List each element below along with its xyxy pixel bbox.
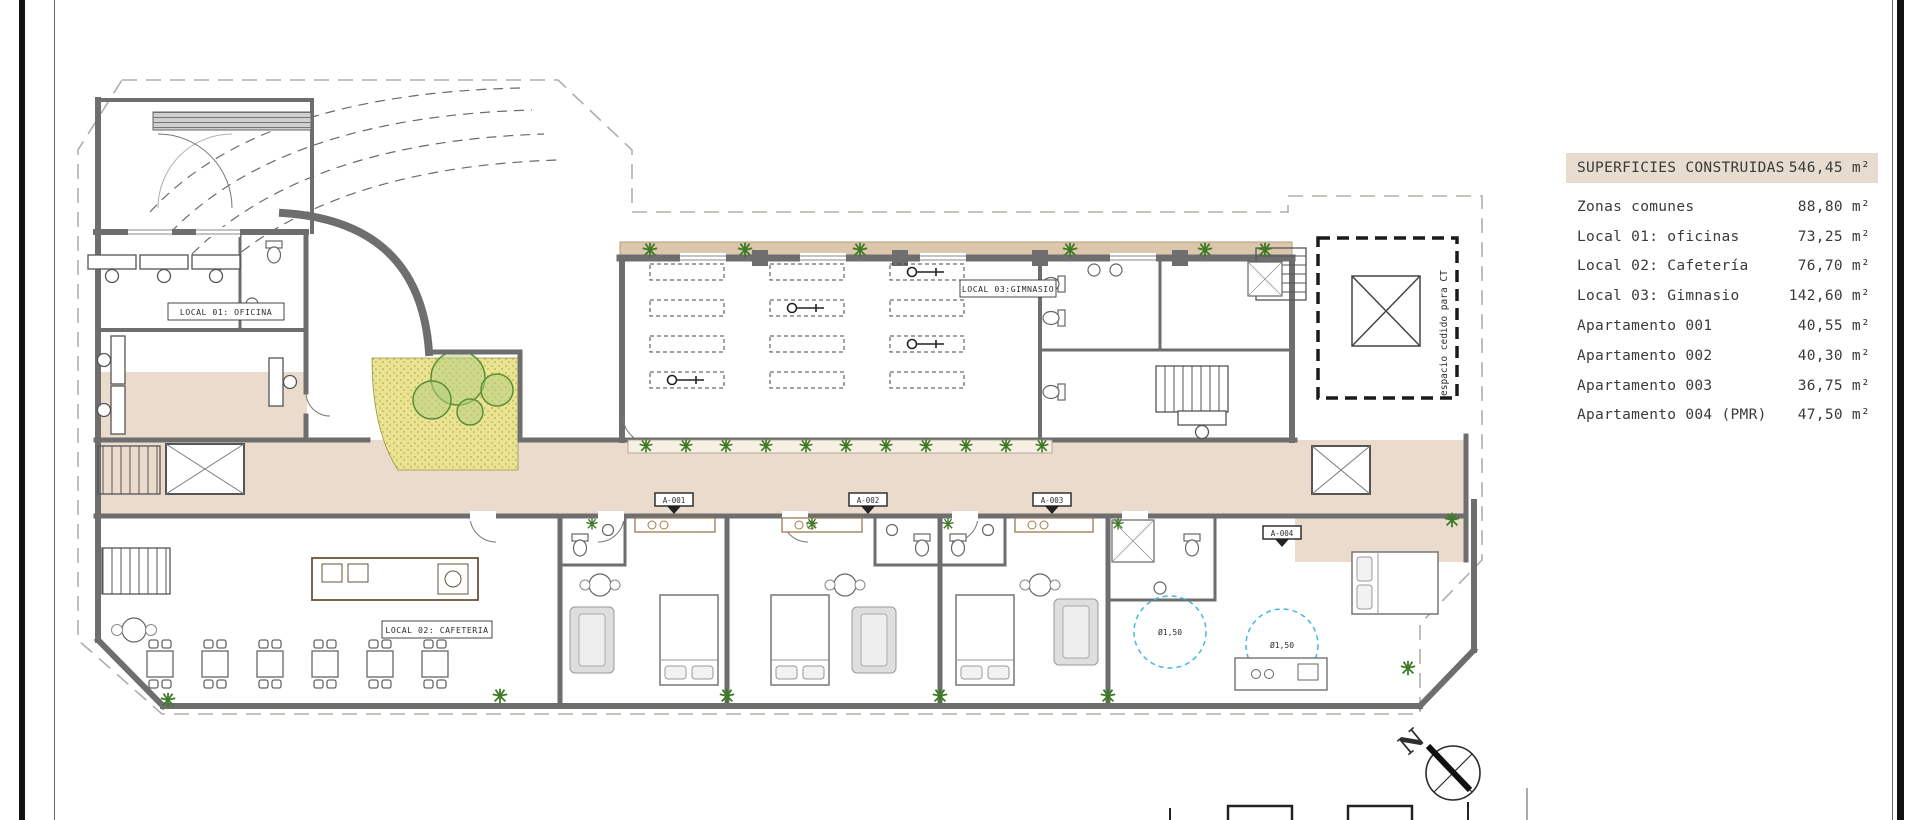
row-label: Apartamento 001 bbox=[1577, 318, 1712, 334]
areas-table-header: SUPERFICIES CONSTRUIDAS 546,45 m² bbox=[1566, 153, 1878, 183]
svg-text:LOCAL 01: OFICINA: LOCAL 01: OFICINA bbox=[180, 307, 272, 317]
table-row: Apartamento 003 36,75 m² bbox=[1566, 371, 1878, 401]
gym-planter bbox=[628, 440, 1052, 453]
row-label: Local 03: Gimnasio bbox=[1577, 288, 1740, 304]
stair-left-a bbox=[98, 446, 160, 494]
north-label: N bbox=[1393, 723, 1430, 761]
table-row: Apartamento 002 40,30 m² bbox=[1566, 341, 1878, 371]
row-value: 76,70 m² bbox=[1798, 258, 1870, 274]
bottom-cropped-fragments bbox=[1170, 788, 1527, 820]
label-local-01: LOCAL 01: OFICINA bbox=[168, 303, 284, 320]
table-row: Apartamento 001 40,55 m² bbox=[1566, 311, 1878, 341]
table-row: Zonas comunes 88,80 m² bbox=[1566, 192, 1878, 222]
svg-text:A-001: A-001 bbox=[663, 496, 686, 505]
common-zones-fill bbox=[95, 372, 1466, 562]
gym-equipment bbox=[650, 264, 964, 388]
svg-text:LOCAL 02: CAFETERIA: LOCAL 02: CAFETERIA bbox=[385, 625, 488, 635]
label-local-02: LOCAL 02: CAFETERIA bbox=[382, 621, 492, 638]
row-value: 40,55 m² bbox=[1798, 318, 1870, 334]
svg-text:A-003: A-003 bbox=[1041, 496, 1064, 505]
pmr-circle-label-2: Ø1,50 bbox=[1270, 640, 1294, 650]
entry-mat bbox=[153, 112, 311, 130]
row-label: Local 01: oficinas bbox=[1577, 229, 1740, 245]
areas-table: SUPERFICIES CONSTRUIDAS 546,45 m² Zonas … bbox=[1566, 153, 1878, 430]
table-row: Local 03: Gimnasio 142,60 m² bbox=[1566, 281, 1878, 311]
apartment-002-furniture bbox=[771, 518, 930, 685]
areas-table-header-value: 546,45 m² bbox=[1789, 160, 1870, 176]
areas-table-rows: Zonas comunes 88,80 m² Local 01: oficina… bbox=[1566, 192, 1878, 430]
svg-text:A-002: A-002 bbox=[857, 496, 880, 505]
floor-plan-sheet: espacio cedido para CT bbox=[0, 0, 1920, 820]
row-label: Apartamento 003 bbox=[1577, 378, 1712, 394]
apartment-001-furniture bbox=[570, 518, 718, 685]
apartment-003-furniture bbox=[950, 518, 1098, 685]
row-value: 88,80 m² bbox=[1798, 199, 1870, 215]
pmr-circle-label-1: Ø1,50 bbox=[1158, 627, 1182, 637]
svg-text:A-004: A-004 bbox=[1271, 529, 1294, 538]
row-value: 142,60 m² bbox=[1789, 288, 1870, 304]
row-label: Local 02: Cafetería bbox=[1577, 258, 1749, 274]
row-label: Zonas comunes bbox=[1577, 199, 1694, 215]
row-label: Apartamento 004 (PMR) bbox=[1577, 407, 1767, 423]
row-value: 47,50 m² bbox=[1798, 407, 1870, 423]
elevator-left bbox=[166, 444, 244, 494]
areas-table-header-label: SUPERFICIES CONSTRUIDAS bbox=[1577, 160, 1785, 176]
stair-right bbox=[1156, 366, 1228, 412]
ct-space: espacio cedido para CT bbox=[1318, 238, 1457, 398]
row-label: Apartamento 002 bbox=[1577, 348, 1712, 364]
table-row: Local 01: oficinas 73,25 m² bbox=[1566, 222, 1878, 252]
row-value: 36,75 m² bbox=[1798, 378, 1870, 394]
north-arrow-icon: N bbox=[1393, 723, 1480, 800]
table-row: Apartamento 004 (PMR) 47,50 m² bbox=[1566, 401, 1878, 431]
row-value: 40,30 m² bbox=[1798, 348, 1870, 364]
row-value: 73,25 m² bbox=[1798, 229, 1870, 245]
svg-text:LOCAL 03:GIMNASIO: LOCAL 03:GIMNASIO bbox=[962, 284, 1054, 294]
label-local-03: LOCAL 03:GIMNASIO bbox=[960, 280, 1056, 297]
elevator-right bbox=[1312, 446, 1370, 494]
ct-space-label: espacio cedido para CT bbox=[1439, 270, 1450, 396]
table-row: Local 02: Cafetería 76,70 m² bbox=[1566, 252, 1878, 282]
stair-left-b bbox=[102, 548, 170, 594]
